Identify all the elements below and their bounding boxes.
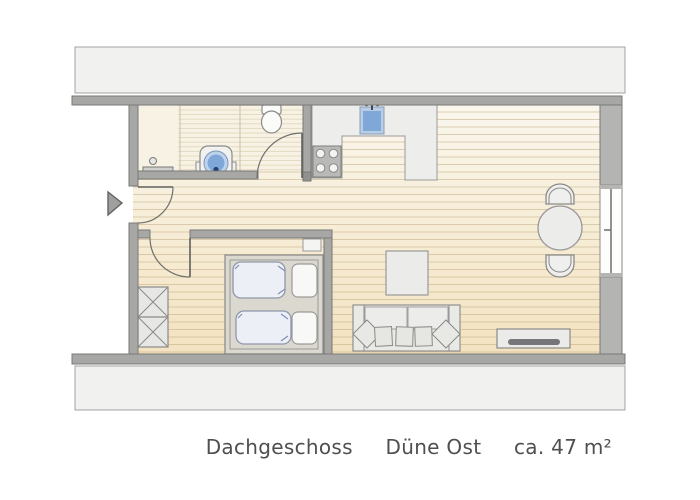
sink-basin: [363, 111, 381, 131]
pillow: [292, 312, 317, 344]
sofa-cushion: [415, 327, 433, 347]
stove: [313, 146, 341, 177]
sofa-cushion: [396, 327, 414, 347]
wall-outer-left-lower: [129, 223, 138, 354]
sideboard-tv: [497, 329, 570, 348]
caption-floor: Dachgeschoss: [206, 435, 353, 459]
tv-icon: [508, 339, 560, 345]
mattress: [233, 262, 285, 298]
double-bed: [225, 255, 323, 354]
stove-burner: [329, 164, 338, 173]
nightstand: [303, 239, 321, 251]
roof-band-bottom: [75, 366, 625, 410]
wall-outer-bottom: [72, 354, 625, 364]
wall-kitchen-separator-cap: [303, 172, 311, 181]
window: [600, 185, 622, 277]
window-sill: [600, 185, 622, 189]
wall-outer-left-upper: [129, 105, 138, 186]
wall-bathroom-bottom: [138, 171, 258, 179]
caption-area: ca. 47 m²: [514, 435, 612, 459]
wall-kitchen-separator: [303, 105, 311, 181]
floor-plan-drawing: [0, 0, 700, 500]
coffee-table: [386, 251, 428, 295]
floor-plan-canvas: Dachgeschoss Düne Ost ca. 47 m²: [0, 0, 700, 500]
dining-table: [538, 206, 582, 250]
sofa: [353, 305, 460, 351]
wall-bedroom-right: [324, 238, 332, 354]
wall-bedroom-top: [190, 230, 332, 238]
wall-bedroom-stub: [138, 230, 150, 238]
towel-rail-knob: [150, 158, 157, 165]
toilet: [262, 105, 282, 133]
roof-band-top: [75, 47, 625, 93]
wall-outer-right-lower: [600, 277, 622, 354]
wall-outer-right-upper: [600, 105, 622, 185]
stove-burner: [316, 164, 325, 173]
sofa-cushion: [375, 327, 393, 347]
kitchen-sink: [360, 103, 384, 134]
towel-rail-bar: [143, 167, 173, 171]
sideboard: [497, 329, 570, 348]
wall-outer-top: [72, 96, 622, 105]
wardrobe: [138, 287, 168, 347]
window-sill: [600, 273, 622, 277]
pillow: [292, 264, 317, 297]
toilet-bowl: [262, 111, 282, 133]
caption-name: Düne Ost: [386, 435, 482, 459]
plan-caption: Dachgeschoss Düne Ost ca. 47 m²: [206, 435, 612, 459]
stove-burner: [329, 149, 338, 158]
entrance-arrow-icon: [108, 192, 122, 215]
stove-burner: [316, 149, 325, 158]
